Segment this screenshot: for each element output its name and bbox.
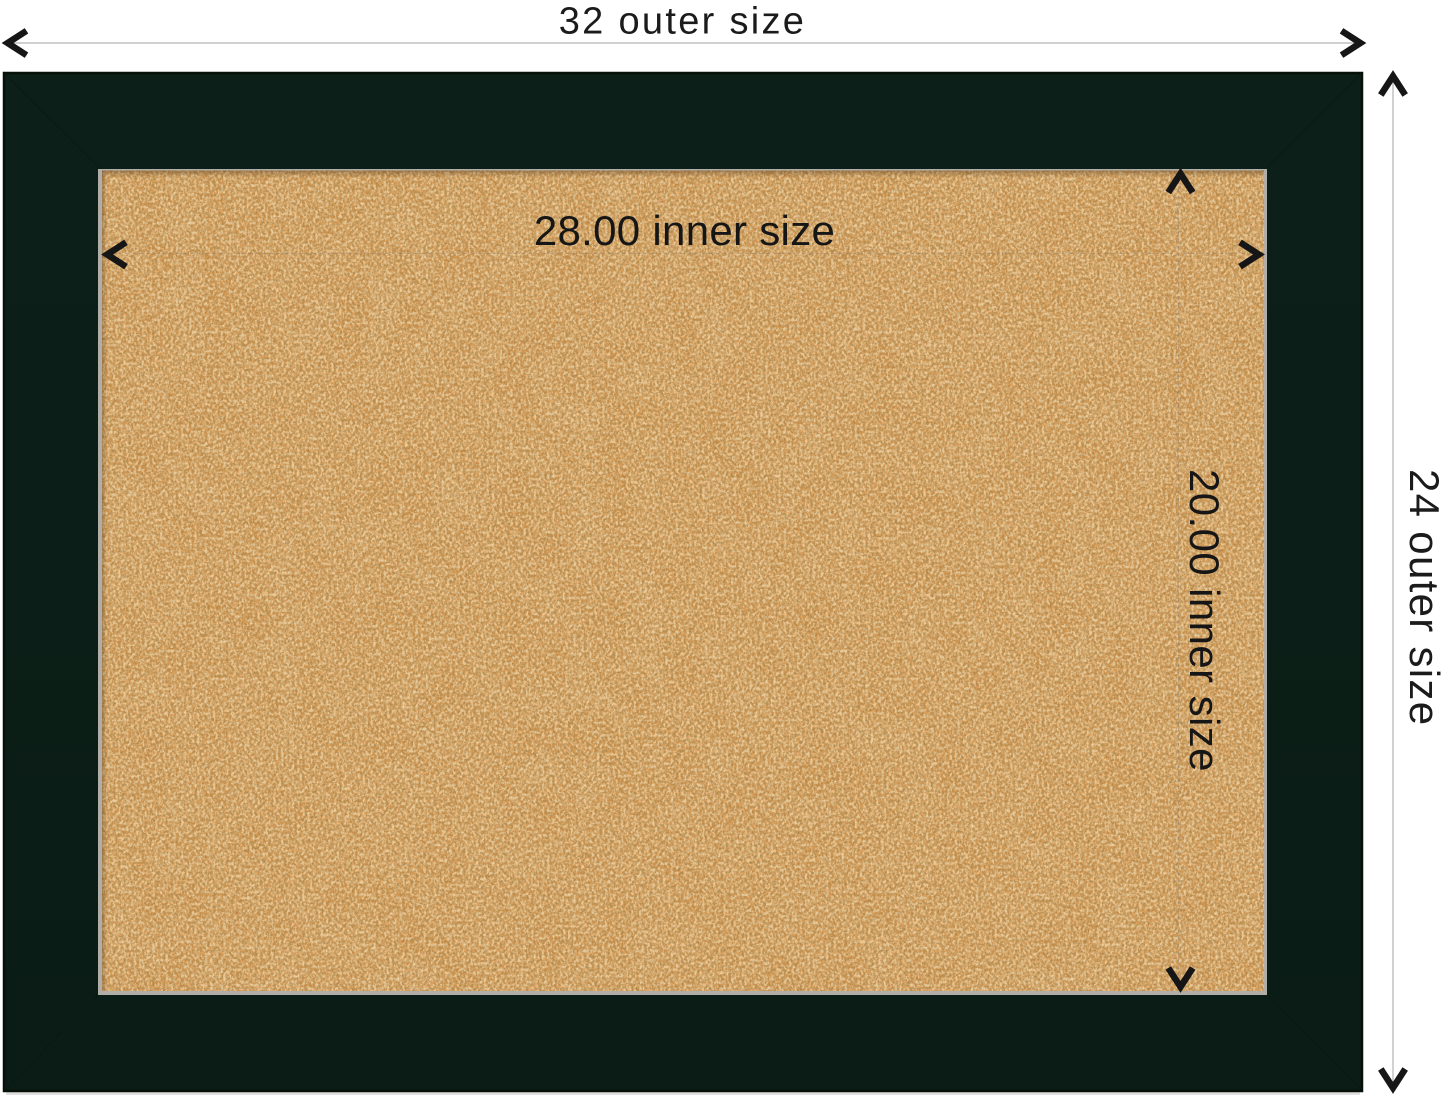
svg-text:24 outer size: 24 outer size [1401, 469, 1445, 726]
svg-text:20.00 inner size: 20.00 inner size [1181, 469, 1228, 772]
svg-text:32 outer size: 32 outer size [559, 1, 806, 43]
svg-text:28.00 inner size: 28.00 inner size [534, 207, 835, 254]
